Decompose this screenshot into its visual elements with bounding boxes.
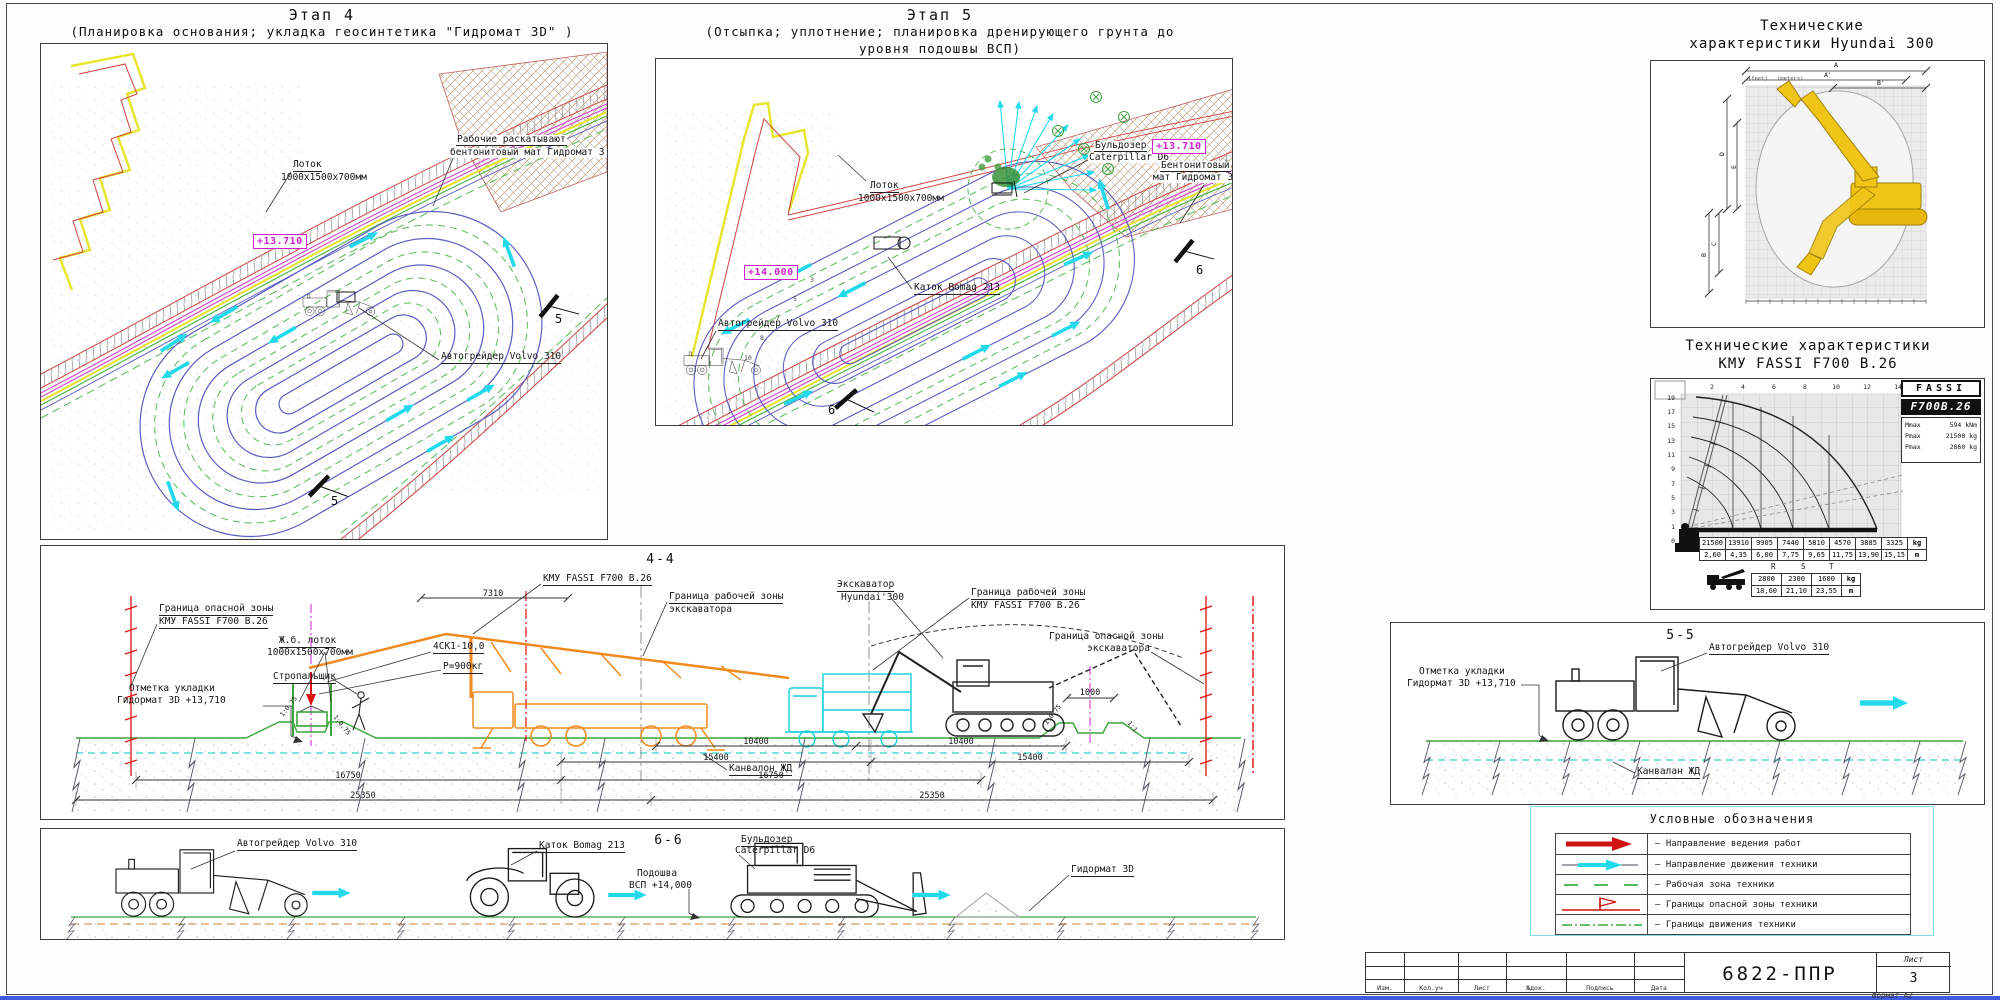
stage4-subtitle: (Планировка основания; укладка геосинтет… [70,24,573,39]
stage5-pass-number: 7 [776,315,780,322]
stage5-subtitle-2: уровня подошвы ВСП) [859,41,1021,56]
load-kg: 13910 [1726,538,1752,549]
stage5-elevation-main: +14.000 [744,265,798,280]
dim-16750: 16750 [335,771,361,781]
work-zone-kmu-label2: КМУ FASSI F700 B.26 [971,601,1080,611]
format-note: Формат А2 [1872,991,1913,1000]
excavator-label: Экскаватор [837,580,894,592]
section-6-6-panel: 6-6 Автогрейдер Volvo 310 Каток Bomag 21… [40,828,1285,940]
stage5-section-marker: 6 [828,403,835,417]
titleblock-col-list: Лист [1474,984,1490,992]
fassi-title-1: Технические характеристики [1685,338,1930,354]
mat-elevation-label: Отметка укладки [129,684,215,694]
fassi-axis-left: 0 [1661,537,1675,545]
stage4-workers-label2: бентонитовый мат Гидромат 3 D [449,148,608,158]
stage5-lotok-label: Лоток [870,181,899,193]
hyundai-dim-B: B [1701,253,1708,257]
drawing-sheet: Этап 4 (Планировка основания; укладка ге… [0,0,2000,1000]
legend-item-label: – Рабочая зона техники [1648,880,1774,890]
title-block: Изм. Кол.уч Лист №док. Подпись Дата 6822… [1365,952,1950,993]
reach-m: 15,15 [1882,549,1908,560]
unit-kg: kg [1842,574,1860,585]
legend-title: Условные обозначения [1650,813,1815,826]
stage5-pass-number: 8 [760,335,764,342]
dozer-label2: Caterpillar D6 [735,846,815,856]
section-5-5-panel: 5-5 Автогрейдер Volvo 310 Отметка укладк… [1390,622,1985,805]
load-kg: 4570 [1830,538,1856,549]
mat-elevation-label: Отметка укладки [1419,667,1505,677]
section-5-5-title: 5-5 [1666,628,1695,643]
hyundai-dim-C: C [1711,242,1718,246]
reach-m: 9,65 [1804,549,1830,560]
sling-label: 4СК1-10,0 [433,642,484,654]
mat-elevation-label2: Гидормат 3D +13,710 [1407,679,1516,689]
fassi-axis-top: 2 [1710,383,1714,391]
fassi-axis-top: 6 [1772,383,1776,391]
danger-zone-flag-icon [1556,895,1648,915]
stage5-pass-number: 10 [744,355,752,362]
section-4-4-drawing [41,546,1284,819]
jib-m: 21,10 [1782,585,1812,596]
load-kg: 7440 [1778,538,1804,549]
reach-m: 2,60 [1700,549,1726,560]
hyundai-dim-D: D [1719,152,1726,156]
stage5-pass-number: 3 [810,277,814,284]
reach-m: 6,00 [1752,549,1778,560]
dim-10400: 10400 [743,737,769,747]
reach-m: 4,35 [1726,549,1752,560]
dim-15400: 15400 [1017,753,1043,763]
hyundai-axis-feet: (feet) [1748,76,1768,82]
spec-key: Mmax [1905,420,1921,431]
stage5-pass-number: 5 [793,296,797,303]
sheet-word-label: Лист [1876,955,1951,964]
load-kg: 21500 [1700,538,1726,549]
work-zone-excavator-label: Граница рабочей зоны [669,592,783,604]
hyundai-title-2: характеристики Hyundai 300 [1689,36,1934,52]
stage4-workers-label: Рабочие раскатывают [456,135,567,146]
fassi-axis-left: 3 [1661,508,1675,516]
stage5-lotok-size: 1000х1500х700мм [858,194,944,204]
fassi-axis-left: 19 [1661,394,1675,402]
spec-value: 2860 kg [1950,442,1977,453]
danger-zone-kmu-label: Граница опасной зоны [159,604,273,616]
fassi-logo: FASSI [1901,380,1981,397]
hyundai-dim-E: E [1731,165,1738,169]
fassi-jib-letter: S [1801,563,1806,571]
fassi-spec-box: Mmax594 kNm Pmax21500 kg Pmax2860 kg [1901,417,1981,463]
stage5-subtitle-1: (Отсыпка; уплотнение; планировка дрениру… [706,24,1175,39]
hyundai-reach-diagram [1651,61,1984,327]
fassi-jib-letter: T [1829,563,1834,571]
stage4-section-marker: 5 [331,494,338,508]
legend-row: – Границы опасной зоны техники [1556,894,1910,914]
load-kg: 5810 [1804,538,1830,549]
lotok-size-label: 1000х1500х700мм [267,648,353,658]
unit-kg: kg [1908,538,1926,549]
kanvalan-label: Канвалан ЖД [1637,767,1700,779]
stage5-plan-panel: Бульдозер Caterpillar D6 Лоток 1000х1500… [655,58,1233,426]
legend-row: – Направление ведения работ [1556,834,1910,854]
section-6-6-title: 6-6 [654,833,683,848]
stage4-elevation: +13.710 [253,234,307,249]
stage5-dozer-label: Бульдозер [1094,141,1147,152]
fassi-axis-top: 10 [1832,383,1840,391]
stage5-elevation-right: +13.710 [1152,139,1206,154]
jib-m: 23,55 [1812,585,1842,596]
dim-1000: 1000 [1080,688,1100,698]
spec-value: 594 kNm [1950,420,1977,431]
gidromat-label: Гидормат 3D [1071,865,1134,877]
dim-25350: 25350 [350,791,376,801]
danger-zone-kmu-label2: КМУ FASSI F700 B.26 [159,617,268,629]
stage5-dozer-label2: Caterpillar D6 [1088,153,1170,163]
stage4-plan-drawing [41,44,607,539]
hyundai-chart-panel: A A' B' D E C B (feet) (meters) [1650,60,1985,328]
load-kg: 3885 [1856,538,1882,549]
fassi-axis-left: 7 [1661,480,1675,488]
stage4-title: Этап 4 [289,6,355,24]
jib-kg: 2300 [1782,574,1812,585]
reach-m: 11,75 [1830,549,1856,560]
stage4-section-marker: 5 [555,312,562,326]
unit-m: m [1908,549,1926,560]
mat-elevation-label2: Гидормат 3D +13,710 [117,696,226,706]
work-zone-excavator-label2: экскаватора [669,605,732,615]
movement-boundary-dashdot-icon [1556,915,1648,935]
fassi-chart-panel: FASSI F700B.26 Mmax594 kNm Pmax21500 kg … [1650,378,1985,610]
hyundai-dim-B1: B' [1877,80,1885,87]
dim-10400: 10400 [948,737,974,747]
legend-item-label: – Границы движения техники [1648,920,1796,930]
fassi-axis-left: 5 [1661,494,1675,502]
fassi-axis-left: 17 [1661,408,1675,416]
dump-truck [785,674,913,747]
work-zone-kmu-label: Граница рабочей зоны [971,588,1085,600]
unit-m: m [1842,585,1860,596]
grader-label: Автогрейдер Volvo 310 [237,839,357,851]
titleblock-col-podpis: Подпись [1586,984,1613,992]
fassi-jib-letter: R [1771,563,1776,571]
jib-kg: 2800 [1752,574,1782,585]
sheet-bottom-strip [0,996,2000,1000]
danger-zone-excavator-label: Граница опасной зоны [1049,632,1163,642]
kmu-label: КМУ FASSI F700 B.26 [543,574,652,586]
fassi-axis-left: 15 [1661,422,1675,430]
jib-kg: 1600 [1812,574,1842,585]
kmu-crane-truck [309,634,789,750]
load-label: Р=900кг [443,662,483,674]
fassi-load-table: 2150013910 99057440 58104570 38853325 kg… [1699,537,1927,561]
hyundai-dim-A1: A' [1824,72,1832,79]
stage5-mat-label2: мат Гидромат 3 D [1152,173,1233,183]
titleblock-col-izm: Изм. [1377,984,1393,992]
hyundai-title-1: Технические [1760,18,1864,34]
spec-key: Pmax [1905,431,1921,442]
section-4-4-title: 4-4 [646,552,675,567]
legend-panel: Условные обозначения – Направление веден… [1530,806,1934,936]
spec-key: Pmax [1905,442,1921,453]
fassi-model: F700B.26 [1901,399,1981,415]
work-direction-arrow-icon [1556,834,1648,854]
work-zone-dash-icon [1556,875,1648,895]
titleblock-col-ndok: №док. [1526,984,1546,992]
legend-item-label: – Границы опасной зоны техники [1648,900,1818,910]
titleblock-col-data: Дата [1651,984,1667,992]
fassi-jib-table: 2800 2300 1600 kg 18,60 21,10 23,55 m [1751,573,1861,597]
stage5-section-marker: 6 [1196,263,1203,277]
dim-7310: 7310 [483,589,503,599]
dim-25350: 25350 [919,791,945,801]
dim-15400: 15400 [703,753,729,763]
vsp-sole-label2: ВСП +14,000 [629,881,692,891]
excavator-label2: Hyundai'300 [841,593,904,603]
load-kg: 9905 [1752,538,1778,549]
fassi-axis-top: 4 [1741,383,1745,391]
fassi-axis-left: 13 [1661,437,1675,445]
vsp-sole-label: Подошва [637,869,677,879]
legend-row: – Границы движения техники [1556,914,1910,934]
fassi-axis-left: 9 [1661,465,1675,473]
stage5-title: Этап 5 [907,6,973,24]
stage4-grader-label: Автогрейдер Volvo 310 [441,352,561,364]
stage4-lotok-label: Лоток [293,160,322,172]
sheet-number: 3 [1876,971,1951,986]
legend-item-label: – Направление ведения работ [1648,839,1801,849]
fassi-axis-top: 14 [1894,383,1902,391]
stage4-lotok-size: 1000х1500х700мм [281,173,367,183]
truck-icon [1707,569,1745,590]
fassi-axis-top: 8 [1803,383,1807,391]
rigger-figure [352,692,369,730]
hyundai-axis-meters: (meters) [1777,76,1804,82]
document-number: 6822-ППР [1684,953,1876,994]
dim-16750: 16750 [758,771,784,781]
danger-zone-excavator-label2: экскаватора [1087,644,1150,654]
legend-row: – Рабочая зона техники [1556,874,1910,894]
roller-label: Каток Bomag 213 [539,841,625,853]
titleblock-col-koluch: Кол.уч [1419,984,1442,992]
spec-value: 21500 kg [1946,431,1977,442]
machine-direction-arrow-icon [1556,855,1648,875]
jib-m: 18,60 [1752,585,1782,596]
stage5-roller-label: Каток Bomag 213 [914,283,1000,295]
section-4-4-panel: 4-4 Граница опасной зоны КМУ FASSI F700 … [40,545,1285,820]
stage5-mat-label: Бентонитовый [1160,161,1231,172]
legend-row: – Направление движения техники [1556,854,1910,874]
fassi-axis-left: 11 [1661,451,1675,459]
legend-item-label: – Направление движения техники [1648,860,1818,870]
reach-m: 13,90 [1856,549,1882,560]
legend-table: – Направление ведения работ – Направлени… [1555,833,1911,935]
load-kg: 3325 [1882,538,1908,549]
fassi-axis-left: 1 [1661,523,1675,531]
grader-label: Автогрейдер Volvo 310 [1709,643,1829,655]
stage4-plan-panel: Лоток 1000х1500х700мм Рабочие раскатываю… [40,43,608,540]
rigger-label: Стропальщик [273,672,336,684]
fassi-title-2: КМУ FASSI F700 B.26 [1718,356,1897,372]
reach-m: 7,75 [1778,549,1804,560]
fassi-axis-top: 12 [1863,383,1871,391]
stage5-plan-drawing [656,59,1232,425]
hyundai-dim-A: A [1834,62,1838,69]
